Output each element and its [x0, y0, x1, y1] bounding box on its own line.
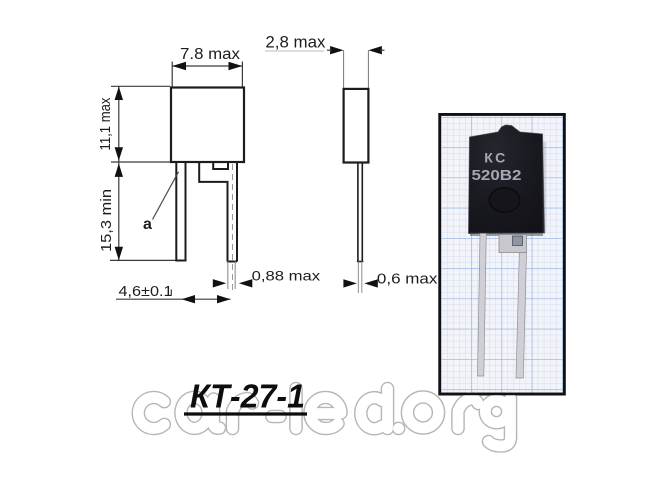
svg-text:0,88 max: 0,88 max: [252, 268, 321, 284]
svg-text:КС: КС: [484, 150, 507, 166]
svg-text:КТ-27-1: КТ-27-1: [190, 378, 305, 415]
svg-text:a: a: [143, 216, 152, 233]
svg-text:520В2: 520В2: [472, 167, 522, 184]
svg-text:0,6 max: 0,6 max: [377, 271, 438, 287]
svg-text:15,3 min: 15,3 min: [98, 189, 115, 252]
svg-text:11,1 max: 11,1 max: [97, 97, 114, 150]
svg-text:4,6±0.1: 4,6±0.1: [119, 284, 173, 300]
svg-text:7.8 max: 7.8 max: [180, 46, 240, 63]
svg-text:2,8 max: 2,8 max: [265, 34, 326, 52]
